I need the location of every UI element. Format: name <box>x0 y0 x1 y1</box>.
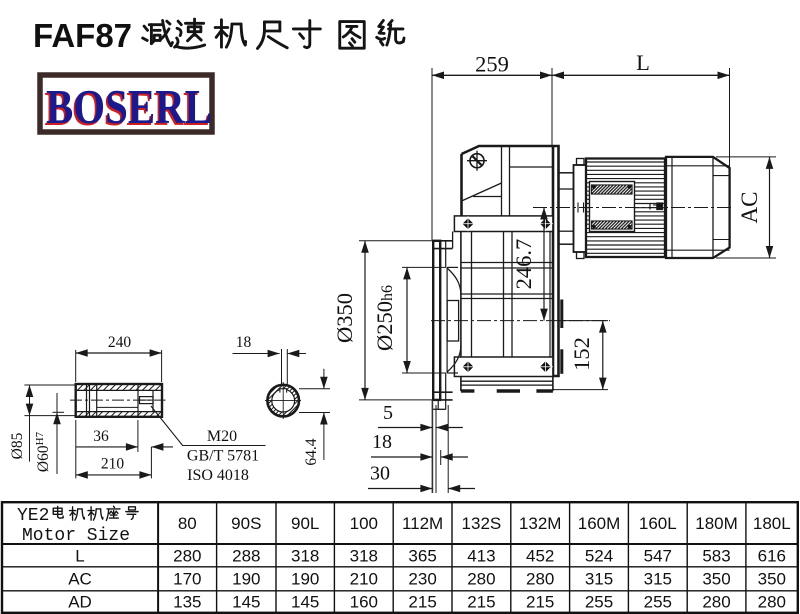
svg-text:170: 170 <box>173 570 201 589</box>
svg-text:288: 288 <box>232 547 260 566</box>
svg-text:280: 280 <box>467 570 495 589</box>
svg-text:Motor Size: Motor Size <box>22 526 130 546</box>
svg-text:36: 36 <box>93 428 109 445</box>
svg-text:240: 240 <box>108 334 132 351</box>
svg-text:145: 145 <box>291 593 319 612</box>
svg-text:GB/T 5781: GB/T 5781 <box>187 448 259 465</box>
svg-text:145: 145 <box>232 593 260 612</box>
svg-text:AD: AD <box>68 593 92 612</box>
svg-text:18: 18 <box>236 334 252 351</box>
svg-text:Ø350: Ø350 <box>332 293 357 343</box>
svg-text:365: 365 <box>408 547 436 566</box>
svg-text:ISO 4018: ISO 4018 <box>187 467 249 484</box>
svg-text:583: 583 <box>702 547 730 566</box>
svg-text:80: 80 <box>178 514 197 533</box>
svg-text:452: 452 <box>526 547 554 566</box>
svg-text:L: L <box>75 547 84 566</box>
svg-text:AC: AC <box>68 570 92 589</box>
svg-text:100: 100 <box>350 514 378 533</box>
svg-text:64.4: 64.4 <box>303 438 320 465</box>
svg-text:132M: 132M <box>519 514 562 533</box>
svg-text:Ø85: Ø85 <box>9 432 26 459</box>
svg-text:280: 280 <box>526 570 554 589</box>
svg-text:190: 190 <box>232 570 260 589</box>
svg-text:547: 547 <box>644 547 672 566</box>
svg-text:318: 318 <box>350 547 378 566</box>
svg-text:280: 280 <box>758 593 786 612</box>
svg-text:318: 318 <box>291 547 319 566</box>
svg-text:L: L <box>636 50 650 75</box>
svg-text:160M: 160M <box>578 514 621 533</box>
svg-text:152: 152 <box>569 337 594 371</box>
svg-text:18: 18 <box>372 431 392 453</box>
svg-text:5: 5 <box>383 402 393 424</box>
svg-text:90L: 90L <box>291 514 319 533</box>
svg-text:30: 30 <box>370 463 390 485</box>
svg-text:132S: 132S <box>462 514 502 533</box>
svg-text:215: 215 <box>408 593 436 612</box>
svg-text:315: 315 <box>644 570 672 589</box>
svg-text:215: 215 <box>526 593 554 612</box>
svg-text:413: 413 <box>467 547 495 566</box>
svg-text:259: 259 <box>475 52 509 77</box>
svg-text:160L: 160L <box>639 514 677 533</box>
svg-text:112M: 112M <box>402 514 443 533</box>
svg-text:315: 315 <box>585 570 613 589</box>
svg-text:210: 210 <box>101 456 125 473</box>
svg-text:180L: 180L <box>753 514 791 533</box>
svg-text:350: 350 <box>758 570 786 589</box>
svg-text:280: 280 <box>173 547 201 566</box>
svg-text:FAF87: FAF87 <box>33 17 132 54</box>
svg-text:524: 524 <box>585 547 613 566</box>
svg-text:246.7: 246.7 <box>511 239 536 290</box>
svg-text:255: 255 <box>644 593 672 612</box>
svg-text:90S: 90S <box>231 514 261 533</box>
svg-text:230: 230 <box>408 570 436 589</box>
svg-text:180M: 180M <box>695 514 738 533</box>
svg-text:215: 215 <box>467 593 495 612</box>
svg-text:190: 190 <box>291 570 319 589</box>
svg-text:280: 280 <box>702 593 730 612</box>
svg-text:350: 350 <box>702 570 730 589</box>
svg-text:M20: M20 <box>207 428 237 445</box>
svg-text:YE2: YE2 <box>17 506 49 526</box>
svg-text:210: 210 <box>350 570 378 589</box>
svg-text:255: 255 <box>585 593 613 612</box>
svg-text:616: 616 <box>758 547 786 566</box>
svg-text:BOSERL: BOSERL <box>46 80 212 134</box>
svg-text:AC: AC <box>737 192 762 224</box>
svg-text:135: 135 <box>173 593 201 612</box>
svg-text:160: 160 <box>350 593 378 612</box>
